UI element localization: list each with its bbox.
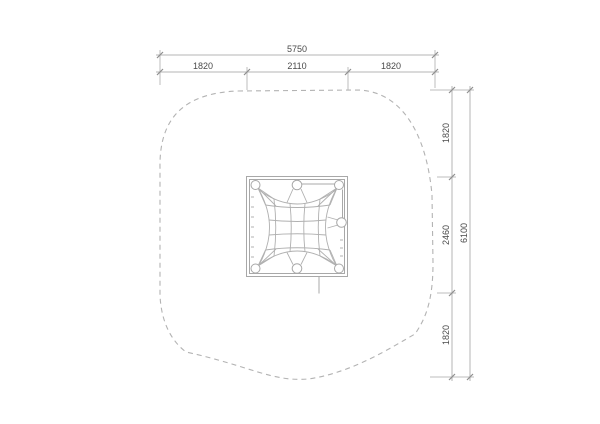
post-bottom-right [335, 264, 344, 273]
dim-total-height-label: 6100 [459, 223, 469, 243]
post-bottom-middle [292, 264, 302, 274]
dimension-group-top: 5750 1820 2110 1820 [156, 44, 439, 90]
net-strand-vertical [318, 199, 320, 256]
post-top-middle [292, 180, 302, 190]
post-top-right [335, 181, 344, 190]
dim-height-segment-bottom-label: 1820 [441, 325, 451, 345]
post-right-middle [337, 218, 347, 228]
net-strand-horizontal [269, 234, 326, 235]
post-top-left [251, 181, 260, 190]
drawing-sheet: 5750 1820 2110 1820 18 [0, 0, 600, 424]
net-corner-fan-bottom-right [318, 249, 337, 266]
net-corner-fan-top-right [318, 188, 337, 206]
dimension-group-right: 1820 2460 1820 6100 [430, 86, 474, 381]
dim-height-segment-top-label: 1820 [441, 123, 451, 143]
dim-total-width-label: 5750 [287, 44, 307, 54]
net-strand-vertical [274, 199, 276, 256]
dim-width-segment-left-label: 1820 [193, 61, 213, 71]
safety-zone-dashed-boundary [160, 90, 433, 379]
dim-width-segment-right-label: 1820 [381, 61, 401, 71]
post-bottom-left [251, 264, 260, 273]
equipment-frame [247, 177, 348, 294]
right-attachment-cleats [340, 240, 343, 256]
dim-width-segment-middle-label: 2110 [287, 61, 306, 71]
net-corner-fan-top-left [258, 188, 276, 206]
technical-drawing-canvas: 5750 1820 2110 1820 18 [0, 0, 600, 424]
net-strand-horizontal [269, 220, 326, 222]
climbing-net [258, 188, 338, 266]
net-corner-fan-bottom-left [258, 249, 276, 266]
net-strand-vertical [290, 204, 291, 253]
dim-height-segment-middle-label: 2460 [441, 225, 451, 245]
net-strand-vertical [304, 204, 305, 253]
left-attachment-cleats [251, 197, 254, 257]
